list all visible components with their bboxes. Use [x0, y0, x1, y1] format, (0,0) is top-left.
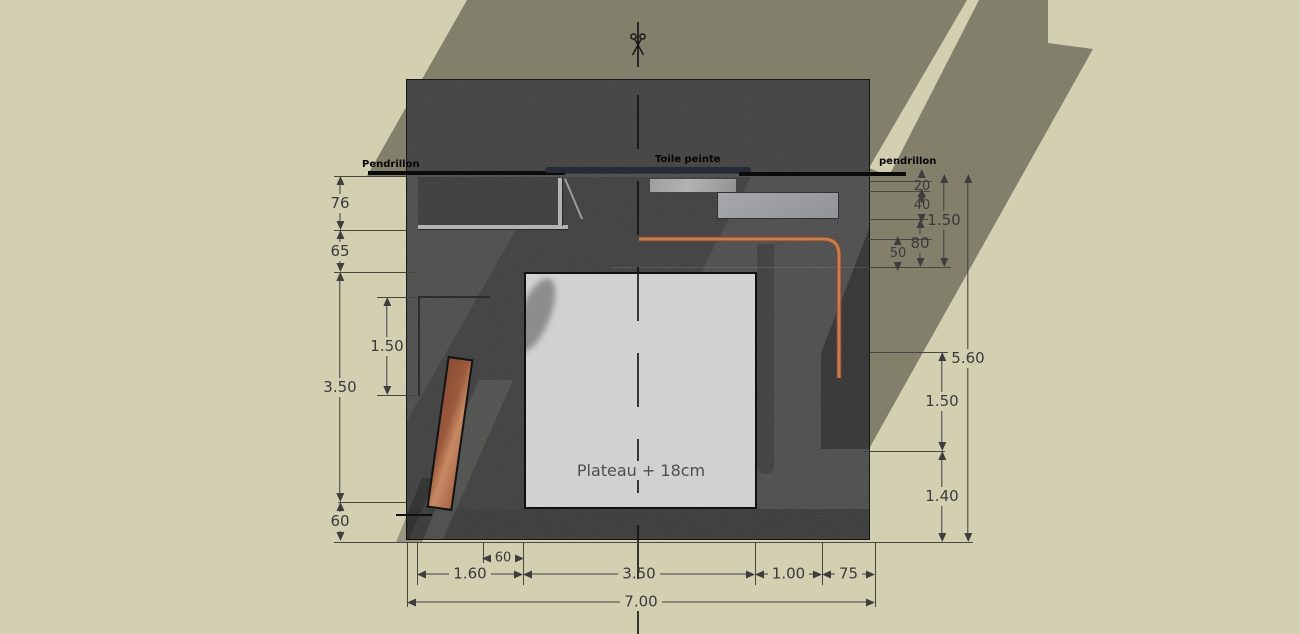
plank-marker-line: [396, 514, 432, 516]
toile-peinte-bar: [545, 167, 751, 173]
pendrillon-right-label: pendrillon: [879, 156, 936, 167]
dimension-arrow-right: [514, 570, 523, 578]
dimension-arrow-down: [336, 263, 344, 272]
dimension-arrow-down: [938, 442, 946, 451]
dimension-line: [831, 574, 835, 575]
dimension-arrow-left: [755, 570, 764, 578]
plateau-label: Plateau + 18cm: [571, 461, 711, 480]
batten-panel-small: [649, 178, 737, 193]
extension-line: [334, 230, 408, 231]
dimension-arrow-down: [964, 533, 972, 542]
dimension-arrow-up: [336, 230, 344, 239]
stage-upper-wall: [407, 80, 869, 174]
dimension-arrow-up: [336, 502, 344, 511]
extension-line: [334, 176, 408, 177]
dimension-horizontal: 60: [483, 552, 523, 565]
dimension-line: [340, 185, 341, 194]
dimension-line: [340, 511, 341, 512]
dimension-label: 60: [491, 552, 516, 565]
dimension-vertical: 76: [330, 176, 349, 230]
extension-line: [334, 542, 973, 543]
dimension-vertical: 60: [330, 502, 349, 541]
dimension-vertical: 1.40: [925, 451, 958, 542]
dimension-line: [764, 574, 768, 575]
dimension-label: 1.50: [370, 337, 403, 356]
extension-line: [407, 542, 408, 607]
dimension-arrow-right: [866, 598, 875, 606]
dimension-line: [942, 460, 943, 487]
dimension-line: [809, 574, 813, 575]
dimension-label: 75: [835, 567, 862, 582]
proscenium-frame-side-bar: [558, 178, 562, 226]
extension-line: [338, 502, 406, 503]
dimension-label: 1.00: [768, 567, 809, 582]
proscenium-frame-bottom-bar: [418, 225, 568, 229]
dimension-label: 60: [330, 512, 349, 531]
dimension-label: 7.00: [620, 595, 661, 610]
dimension-arrow-up: [938, 352, 946, 361]
dimension-arrow-down: [336, 221, 344, 230]
extension-line: [755, 542, 756, 585]
dimension-label: 76: [330, 194, 349, 213]
dimension-arrow-up: [336, 272, 344, 281]
dimension-line: [660, 574, 746, 575]
dimension-line: [662, 602, 866, 603]
stage-elevation-drawing: Pendrillon Toile peinte pendrillon Plate…: [0, 0, 1300, 634]
plateau-shadow-blob: [524, 273, 564, 357]
pendrillon-left-label: Pendrillon: [362, 159, 420, 170]
dimension-line: [340, 281, 341, 378]
dimension-line: [387, 306, 388, 337]
dimension-line: [340, 239, 341, 242]
dimension-horizontal: 7.00: [407, 595, 875, 610]
dimension-arrow-up: [383, 297, 391, 306]
dimension-arrow-left: [822, 570, 831, 578]
dimension-label: 5.60: [951, 349, 984, 368]
dimension-arrow-left: [407, 598, 416, 606]
batten-panel-large: [717, 192, 839, 219]
dimension-arrow-down: [383, 386, 391, 395]
dimension-vertical: 65: [330, 230, 349, 272]
dimension-horizontal: 3.50: [523, 567, 755, 582]
extension-line: [875, 542, 876, 607]
extension-line: [483, 542, 484, 563]
extension-line: [417, 542, 418, 585]
dimension-horizontal: 1.60: [417, 567, 523, 582]
left-guide-line-horizontal: [418, 296, 490, 298]
dimension-arrow-right: [746, 570, 755, 578]
dimension-line: [387, 356, 388, 387]
dimension-line: [532, 574, 618, 575]
stage-edge-line: [612, 267, 869, 268]
dimension-arrow-left: [482, 554, 491, 562]
dimension-arrow-up: [336, 176, 344, 185]
dimension-line: [426, 574, 449, 575]
dimension-line: [340, 531, 341, 532]
dimension-arrow-left: [417, 570, 426, 578]
dimension-line: [942, 411, 943, 442]
dimension-arrow-right: [515, 554, 524, 562]
dimension-label: 3.50: [323, 378, 356, 397]
left-guide-line-vertical: [418, 298, 420, 396]
dimension-horizontal: 75: [822, 567, 875, 582]
plateau-side-shadow: [757, 244, 774, 474]
extension-line: [822, 542, 823, 585]
dimension-arrow-down: [336, 532, 344, 541]
dimension-line: [340, 397, 341, 494]
proscenium-frame-interior: [418, 177, 564, 225]
dimension-label: 3.50: [618, 567, 659, 582]
extension-line: [863, 451, 945, 452]
dimension-line: [968, 368, 969, 534]
dimension-line: [942, 361, 943, 392]
dimension-horizontal: 1.00: [755, 567, 822, 582]
dimension-label: 1.40: [925, 487, 958, 506]
dimension-arrow-left: [523, 570, 532, 578]
dimension-arrow-down: [336, 493, 344, 502]
stage-floor-strip: [407, 509, 869, 539]
extension-line: [523, 542, 524, 585]
dimension-label: 1.50: [925, 392, 958, 411]
extension-line: [334, 272, 415, 273]
dimension-arrow-up: [938, 451, 946, 460]
dimension-arrow-right: [866, 570, 875, 578]
pendrillon-bar-left: [368, 171, 565, 175]
dimension-line: [862, 574, 866, 575]
dimension-line: [942, 506, 943, 533]
dimension-line: [340, 261, 341, 264]
pendrillon-bar-right: [739, 172, 906, 176]
dimension-arrow-right: [813, 570, 822, 578]
dimension-vertical: 3.50: [323, 272, 356, 502]
dimension-vertical: 1.50: [925, 352, 958, 451]
dimension-line: [491, 574, 514, 575]
dimension-arrow-down: [938, 533, 946, 542]
dimension-label: 65: [330, 242, 349, 261]
dimension-line: [416, 602, 620, 603]
toile-peinte-label: Toile peinte: [655, 154, 721, 165]
dimension-label: 1.60: [449, 567, 490, 582]
dimension-line: [340, 213, 341, 222]
dimension-vertical: 1.50: [370, 297, 403, 395]
